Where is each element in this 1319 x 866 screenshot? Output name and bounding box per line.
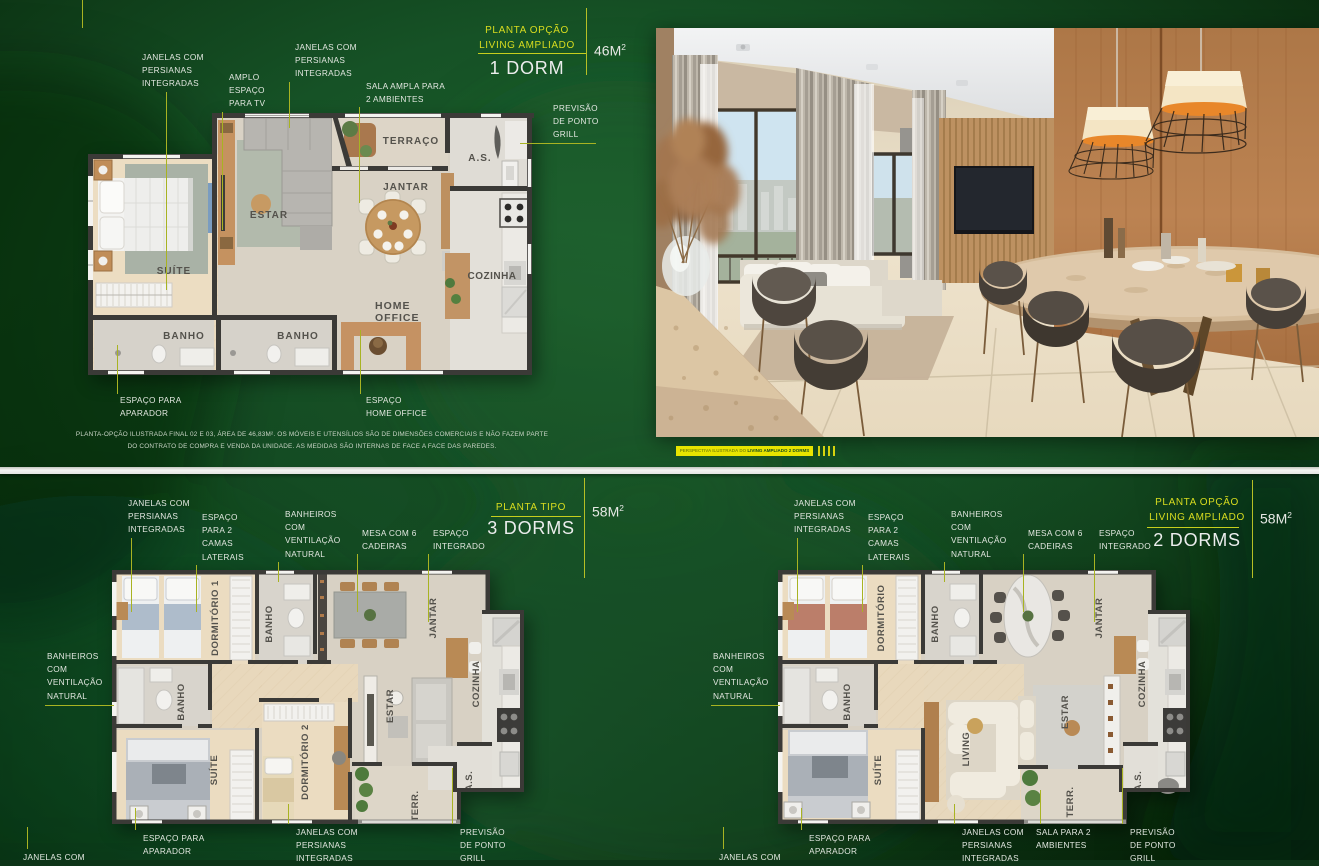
svg-text:ESTAR: ESTAR <box>1060 695 1071 729</box>
svg-text:BANHO: BANHO <box>277 331 319 342</box>
svg-text:BANHO: BANHO <box>930 605 941 642</box>
svg-text:BANHO: BANHO <box>163 331 205 342</box>
svg-text:JANTAR: JANTAR <box>428 598 439 639</box>
svg-text:JANTAR: JANTAR <box>1094 598 1105 639</box>
svg-text:SUÍTE: SUÍTE <box>209 755 220 785</box>
svg-text:LIVING: LIVING <box>961 732 972 767</box>
svg-text:TERRAÇO: TERRAÇO <box>383 136 439 147</box>
svg-text:BANHO: BANHO <box>264 605 275 642</box>
svg-text:TERR.: TERR. <box>1065 787 1076 818</box>
svg-text:BANHO: BANHO <box>842 683 853 720</box>
svg-text:SUÍTE: SUÍTE <box>873 755 884 785</box>
svg-text:TERR.: TERR. <box>410 791 421 822</box>
svg-text:COZINHA: COZINHA <box>467 271 516 282</box>
svg-text:HOME: HOME <box>375 300 411 312</box>
svg-text:SUÍTE: SUÍTE <box>157 264 191 277</box>
svg-text:BANHO: BANHO <box>176 683 187 720</box>
svg-text:DORMITÓRIO: DORMITÓRIO <box>875 585 887 652</box>
svg-text:COZINHA: COZINHA <box>1137 661 1148 708</box>
svg-text:ESTAR: ESTAR <box>250 210 288 221</box>
svg-text:COZINHA: COZINHA <box>471 661 482 708</box>
svg-text:A.S.: A.S. <box>468 153 491 164</box>
svg-text:ESTAR: ESTAR <box>385 689 396 723</box>
svg-text:DORMITÓRIO 1: DORMITÓRIO 1 <box>209 580 221 656</box>
svg-text:DORMITÓRIO 2: DORMITÓRIO 2 <box>299 724 311 800</box>
